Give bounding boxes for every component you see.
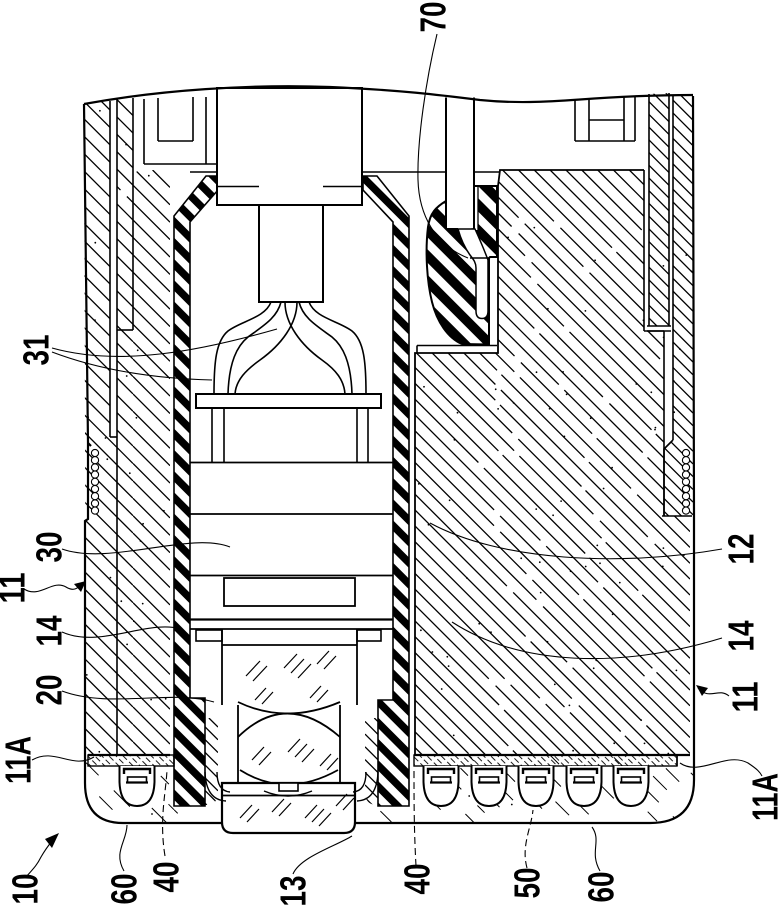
svg-text:70: 70	[413, 2, 454, 33]
svg-text:40: 40	[146, 862, 187, 893]
svg-text:40: 40	[397, 864, 438, 895]
svg-text:10: 10	[5, 874, 46, 905]
svg-text:11A: 11A	[0, 736, 39, 784]
svg-text:12: 12	[721, 534, 762, 565]
svg-text:14: 14	[29, 616, 70, 647]
svg-text:30: 30	[29, 532, 70, 563]
svg-text:11A: 11A	[745, 773, 781, 821]
svg-text:13: 13	[273, 876, 314, 907]
svg-text:50: 50	[507, 868, 548, 899]
svg-text:14: 14	[721, 621, 762, 652]
svg-text:60: 60	[581, 872, 622, 903]
svg-text:20: 20	[29, 675, 70, 706]
svg-text:60: 60	[104, 874, 145, 905]
svg-text:31: 31	[16, 335, 57, 366]
svg-text:11: 11	[725, 682, 766, 713]
svg-text:11: 11	[0, 573, 33, 604]
